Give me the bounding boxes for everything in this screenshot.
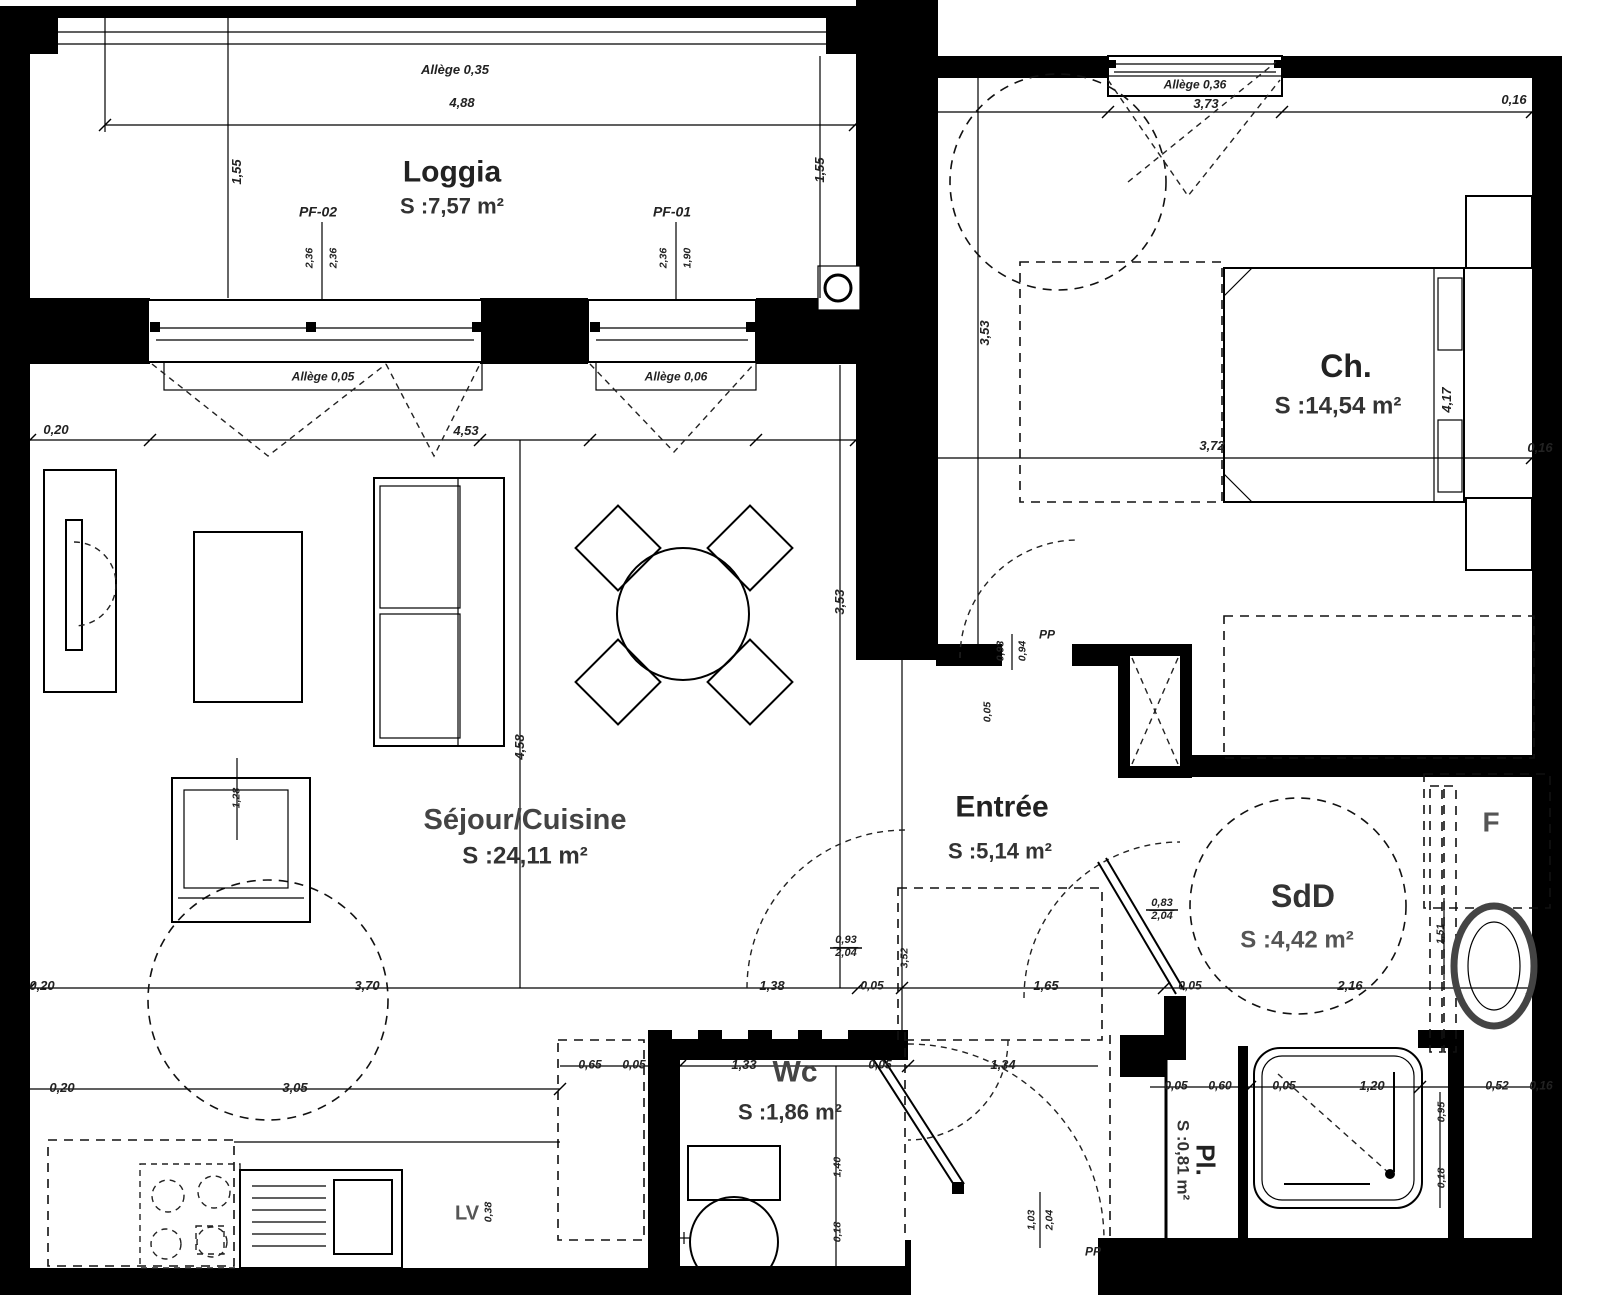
allege-bay1-label: Allège 0,05 bbox=[292, 371, 355, 384]
dim-020-bottom: 0,20 bbox=[49, 1081, 74, 1095]
dim-204: 2,04 bbox=[1044, 1210, 1055, 1230]
allege-bay2-label: Allège 0,06 bbox=[645, 371, 708, 384]
loggia-railing bbox=[58, 32, 826, 44]
dim-453: 4,53 bbox=[453, 424, 478, 438]
dim-134: 1,34 bbox=[990, 1058, 1015, 1072]
dim-488: 4,88 bbox=[449, 96, 474, 110]
pf02-dim-2: 2,36 bbox=[328, 248, 339, 268]
dim-005-a: 0,05 bbox=[860, 980, 883, 993]
dim-138: 1,38 bbox=[759, 979, 784, 993]
dim-020-mid: 0,20 bbox=[29, 979, 54, 993]
appliance-label-lv: LV bbox=[455, 1204, 479, 1225]
dim-103: 1,03 bbox=[1026, 1210, 1037, 1230]
window-tag-pf02: PF-02 bbox=[299, 205, 337, 220]
dim-417: 4,17 bbox=[1440, 387, 1454, 412]
pf01-dim-2: 1,90 bbox=[682, 248, 693, 268]
chair bbox=[576, 506, 661, 591]
wc-door-swing bbox=[908, 1040, 1008, 1140]
room-area-wc: S :1,86 m² bbox=[738, 1100, 842, 1123]
room-name-sejour: Séjour/Cuisine bbox=[423, 805, 626, 835]
closet-label-f: F bbox=[1482, 807, 1499, 836]
dim-140: 1,40 bbox=[832, 1157, 843, 1177]
dining-table bbox=[576, 506, 793, 725]
dim-065: 0,65 bbox=[578, 1059, 601, 1072]
dim-016-a: 0,16 bbox=[1501, 93, 1526, 107]
room-name-sdd: SdD bbox=[1271, 880, 1335, 914]
allege-bedroom-label: Allège 0,36 bbox=[1164, 79, 1227, 92]
dim-095: 0,95 bbox=[1436, 1102, 1447, 1122]
dim-005-c: 0,05 bbox=[622, 1059, 645, 1072]
dim-128: 1,28 bbox=[231, 788, 242, 808]
room-area-placard: S :0,81 m² bbox=[1173, 1120, 1191, 1200]
dim-151: 1,51 bbox=[1435, 924, 1446, 944]
room-area-loggia: S :7,57 m² bbox=[400, 194, 504, 217]
dim-353-b: 3,53 bbox=[833, 589, 847, 614]
dim-094-door: 0,94 bbox=[1017, 641, 1028, 661]
door-dim-sdd: 0,832,04 bbox=[1149, 898, 1174, 922]
room-area-chambre: S :14,54 m² bbox=[1275, 393, 1402, 418]
dim-353-a: 3,53 bbox=[978, 320, 992, 345]
room-name-loggia: Loggia bbox=[403, 156, 501, 188]
f-closet-dashed bbox=[1424, 774, 1550, 908]
dim-373: 3,73 bbox=[1193, 97, 1218, 111]
door-tag-pp-bedroom: PP bbox=[1039, 629, 1055, 642]
entree-cupboard-dashed bbox=[898, 888, 1102, 1040]
dim-005-e: 0,05 bbox=[1164, 1080, 1187, 1093]
dim-016-c: 0,16 bbox=[1529, 1080, 1552, 1093]
tv-stand bbox=[44, 470, 116, 692]
dim-018-a: 0,18 bbox=[832, 1222, 843, 1242]
dashed-guides bbox=[148, 74, 1550, 1240]
bed bbox=[1224, 268, 1464, 502]
dim-060: 0,60 bbox=[1208, 1080, 1231, 1093]
sdd-door-leaf bbox=[1098, 862, 1176, 994]
room-area-entree: S :5,14 m² bbox=[948, 839, 1052, 862]
coffee-table bbox=[194, 532, 302, 702]
dim-372: 3,72 bbox=[1199, 439, 1224, 453]
room-name-chambre: Ch. bbox=[1320, 350, 1372, 384]
floor-plan: Allège 0,35 4,88 1,55 1,55 Loggia S :7,5… bbox=[0, 0, 1600, 1295]
door-tag-pp-entrance: PP bbox=[1085, 1246, 1101, 1259]
room-area-sdd: S :4,42 m² bbox=[1240, 927, 1353, 952]
chair bbox=[576, 640, 661, 725]
dim-216: 2,16 bbox=[1337, 979, 1362, 993]
chair bbox=[708, 506, 793, 591]
room-name-placard: Pl. bbox=[1191, 1120, 1218, 1200]
turning-circle-sejour bbox=[148, 880, 388, 1120]
dim-005-wall: 0,05 bbox=[982, 702, 993, 722]
chair bbox=[708, 640, 793, 725]
sofa bbox=[374, 478, 504, 746]
dim-005-b: 0,05 bbox=[1178, 980, 1201, 993]
room-area-sejour: S :24,11 m² bbox=[462, 843, 587, 868]
dim-038: 0,38 bbox=[483, 1202, 494, 1222]
nightstand bbox=[1466, 498, 1532, 570]
toilet bbox=[678, 1146, 780, 1287]
dim-018-b: 0,18 bbox=[1436, 1168, 1447, 1188]
washbasin bbox=[1454, 906, 1534, 1026]
dim-020-top: 0,20 bbox=[43, 423, 68, 437]
dim-370: 3,70 bbox=[354, 979, 379, 993]
dim-133: 1,33 bbox=[731, 1058, 756, 1072]
room-name-entree: Entrée bbox=[955, 791, 1048, 823]
dim-458: 4,58 bbox=[513, 734, 527, 759]
pf02-dim-1: 2,36 bbox=[304, 248, 315, 268]
stove bbox=[140, 1164, 240, 1268]
wardrobe-dashed bbox=[1020, 262, 1222, 502]
allege-loggia-label: Allège 0,35 bbox=[421, 63, 489, 77]
bed-rug-dashed bbox=[1224, 616, 1534, 758]
door-dim-sejour: 0,932,04 bbox=[833, 935, 858, 959]
room-label-placard: Pl. S :0,81 m² bbox=[1173, 1120, 1218, 1200]
nightstand bbox=[1466, 196, 1532, 268]
shower bbox=[1254, 1048, 1422, 1208]
dim-352: 3,52 bbox=[899, 948, 910, 968]
dim-005-f: 0,05 bbox=[1272, 1080, 1295, 1093]
dim-155-right: 1,55 bbox=[813, 157, 827, 182]
sejour-door-swing bbox=[747, 830, 905, 988]
dim-052: 0,52 bbox=[1485, 1080, 1508, 1093]
pf01-dim-1: 2,36 bbox=[658, 248, 669, 268]
kitchen-sink bbox=[240, 1170, 402, 1268]
sliding-door-dashed bbox=[1430, 786, 1442, 1052]
dim-305: 3,05 bbox=[282, 1081, 307, 1095]
window-tag-pf01: PF-01 bbox=[653, 205, 691, 220]
dim-155-left: 1,55 bbox=[230, 159, 244, 184]
dim-016-b: 0,16 bbox=[1527, 441, 1552, 455]
turning-circle-chambre bbox=[950, 74, 1166, 290]
dim-005-d: 0,05 bbox=[868, 1059, 891, 1072]
dim-093-door: 0,93 bbox=[995, 641, 1006, 661]
room-name-wc: Wc bbox=[773, 1056, 818, 1088]
dim-165: 1,65 bbox=[1033, 979, 1058, 993]
dim-120: 1,20 bbox=[1359, 1079, 1384, 1093]
